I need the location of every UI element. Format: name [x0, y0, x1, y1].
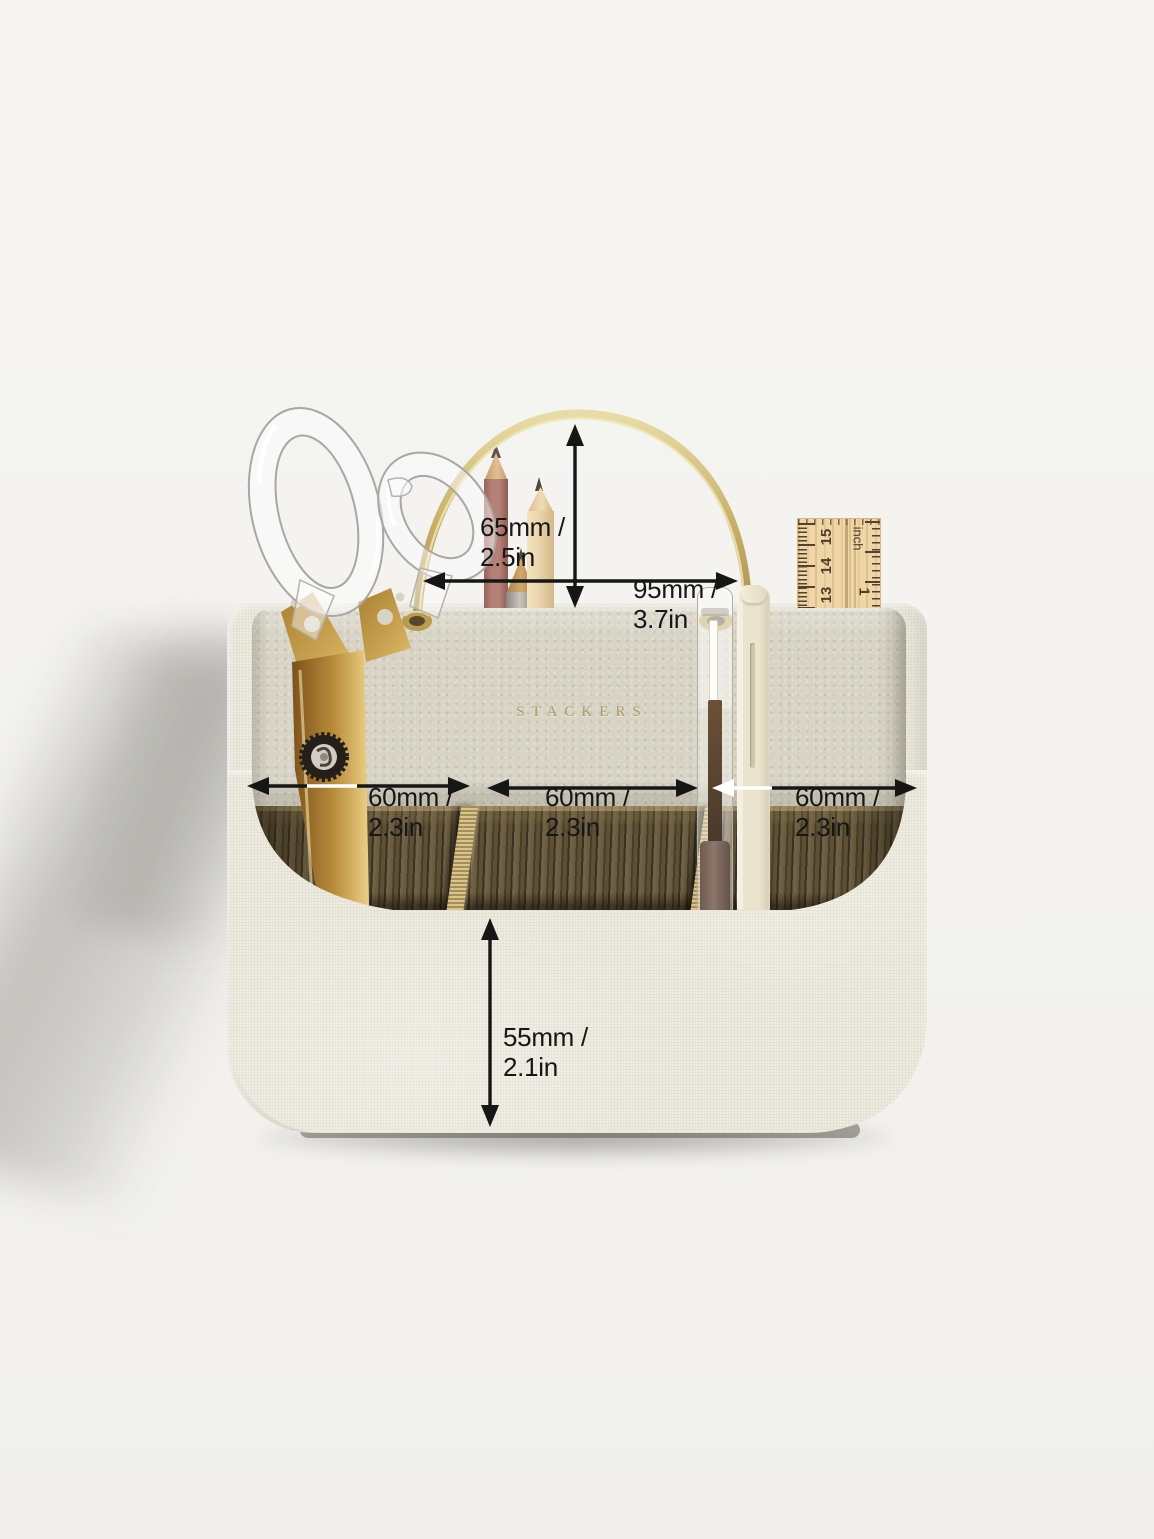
dimension-label-handle-height: 65mm / 2.5in	[480, 452, 508, 572]
dimension-label-handle-width: 95mm / 3.7in	[633, 514, 661, 634]
dimension-mm: 65mm /	[480, 512, 565, 542]
dimension-mm: 60mm /	[795, 782, 880, 812]
dimension-mm: 95mm /	[633, 574, 718, 604]
dimension-label-front-height: 55mm / 2.1in	[503, 962, 531, 1082]
dimension-arrows-layer	[0, 0, 1154, 1539]
dimension-in: 3.7in	[633, 604, 688, 634]
dimension-in: 2.1in	[503, 1052, 558, 1082]
dimension-label-compartment-middle: 60mm / 2.3in	[545, 722, 573, 842]
dimension-in: 2.3in	[368, 812, 423, 842]
product-dimension-photo: 15 14 13 inch 1 STACKERS	[0, 0, 1154, 1539]
dimension-mm: 55mm /	[503, 1022, 588, 1052]
dimension-in: 2.3in	[545, 812, 600, 842]
dimension-mm: 60mm /	[368, 782, 453, 812]
dimension-mm: 60mm /	[545, 782, 630, 812]
dimension-in: 2.5in	[480, 542, 535, 572]
dimension-label-compartment-right: 60mm / 2.3in	[795, 722, 823, 842]
dimension-in: 2.3in	[795, 812, 850, 842]
dimension-label-compartment-left: 60mm / 2.3in	[368, 722, 396, 842]
